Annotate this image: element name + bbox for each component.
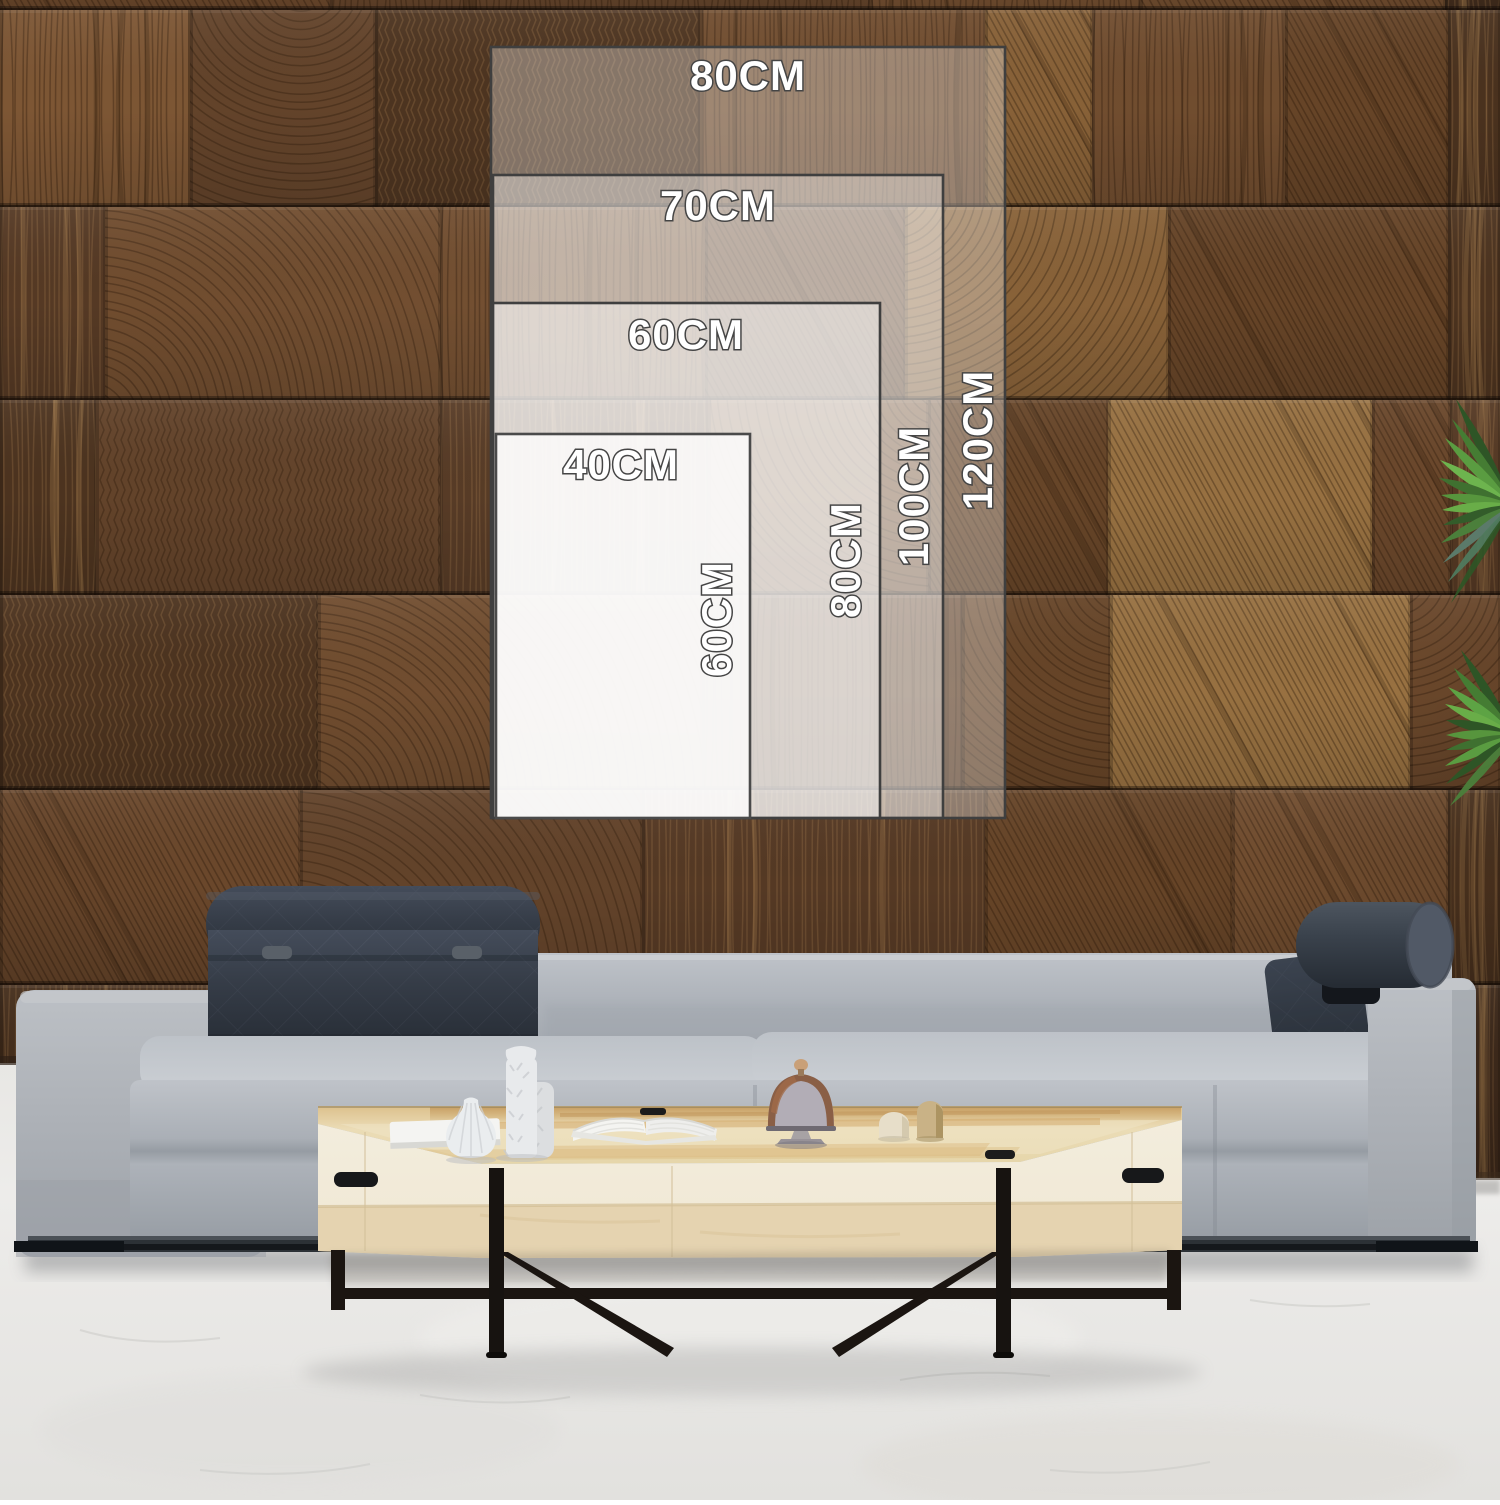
svg-text:60CM: 60CM — [693, 561, 740, 677]
svg-text:70CM: 70CM — [660, 182, 776, 229]
svg-text:120CM: 120CM — [954, 370, 1001, 510]
svg-text:100CM: 100CM — [890, 426, 937, 566]
svg-text:80CM: 80CM — [690, 52, 806, 99]
svg-text:40CM: 40CM — [563, 441, 679, 488]
svg-text:80CM: 80CM — [822, 502, 869, 618]
svg-text:60CM: 60CM — [628, 311, 744, 358]
